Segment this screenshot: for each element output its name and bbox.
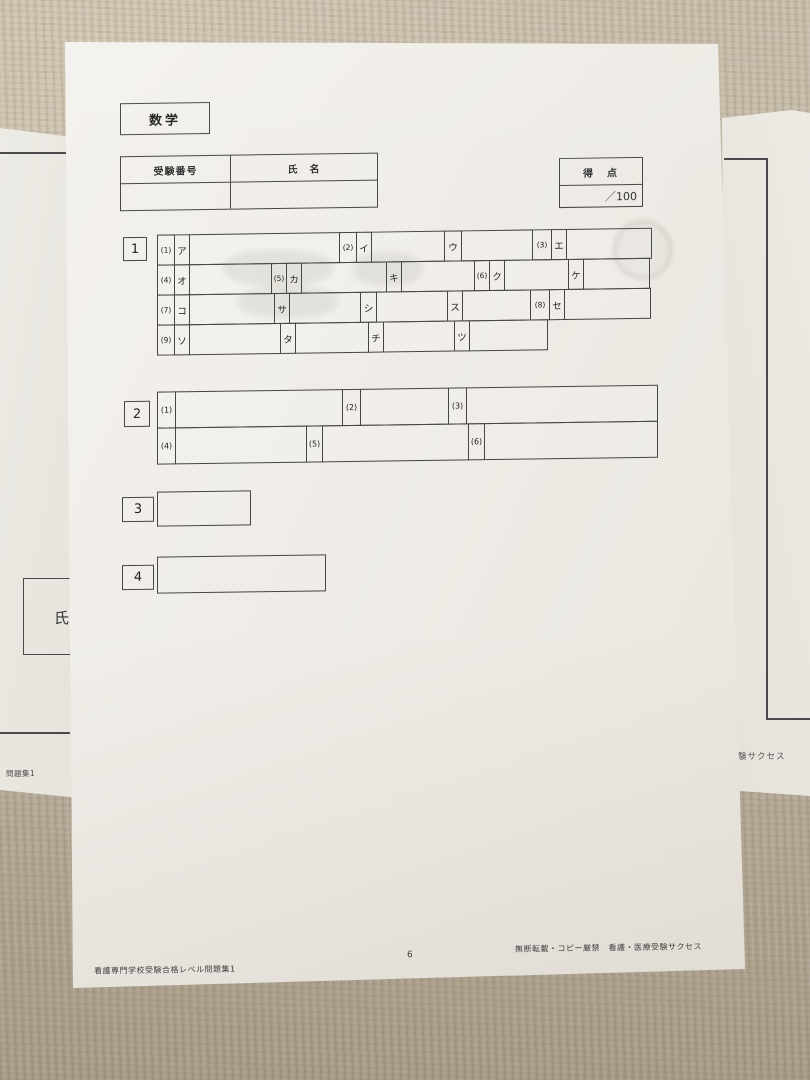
q1-answer-blank — [469, 319, 548, 351]
q1-item-label: (1) — [157, 234, 175, 265]
q2-item-label: (1) — [157, 391, 176, 428]
q1-item-label: (2) — [339, 232, 357, 263]
q1-answer-blank — [564, 288, 651, 320]
q1-kana-label: ソ — [174, 324, 190, 355]
left-sheet-rule-line — [0, 152, 66, 154]
examinee-info-blank-row — [121, 181, 377, 211]
subject-title-box: 数学 — [120, 102, 210, 135]
examinee-info-table: 受験番号 氏 名 — [120, 153, 378, 212]
q1-kana-label: ウ — [444, 230, 462, 261]
score-value: ／100 — [560, 185, 642, 207]
q1-answer-blank — [189, 323, 281, 355]
q1-item-label: (6) — [474, 260, 490, 291]
answer-sheet-content: 数学 受験番号 氏 名 得 点 ／100 1 (1) — [63, 28, 747, 990]
q1-kana-label: オ — [174, 264, 190, 295]
q1-answer-blank — [295, 322, 369, 354]
q1-answer-blank — [301, 261, 387, 293]
q2-row-2: (4) (5) (6) — [157, 421, 658, 465]
footer-page-number: 6 — [407, 950, 413, 960]
left-sheet-footer-text: 問題集1 — [6, 768, 35, 779]
score-box: 得 点 ／100 — [559, 157, 643, 208]
q1-answer-blank — [461, 229, 533, 261]
q1-answer-blank — [504, 259, 569, 291]
q1-kana-label: キ — [386, 261, 402, 292]
q1-item-label: (8) — [530, 289, 550, 320]
q1-answer-blank — [189, 232, 340, 265]
right-sheet-frame-line-top — [724, 158, 768, 160]
q1-item-label: (3) — [532, 229, 552, 260]
q1-answer-blank — [289, 292, 361, 324]
footer-copyright: 無断転載・コピー厳禁 看護・医療受験サクセス — [515, 941, 702, 955]
question-3-number-box: 3 — [122, 497, 154, 522]
q1-answer-blank — [189, 263, 272, 295]
q2-answer-blank — [466, 385, 658, 425]
question-4-number-box: 4 — [122, 565, 154, 590]
name-header-cell: 氏 名 — [231, 154, 377, 182]
q1-item-label: (4) — [157, 264, 175, 295]
question-2-number-box: 2 — [124, 401, 150, 427]
right-sheet-text-fragment: 験サクセス — [738, 750, 786, 762]
q1-kana-label: ス — [447, 290, 463, 321]
q2-answer-blank — [484, 421, 658, 460]
q1-kana-label: カ — [286, 263, 302, 294]
q1-kana-label: ツ — [454, 320, 470, 351]
right-sheet-frame-line-vertical — [766, 158, 768, 720]
q1-answer-blank — [566, 228, 652, 260]
q1-kana-label: ア — [174, 234, 190, 265]
q1-answer-blank — [376, 291, 448, 323]
q1-answer-blank — [583, 258, 650, 290]
exam-number-header-cell: 受験番号 — [121, 156, 231, 184]
q1-answer-blank — [383, 321, 455, 353]
photo-scene: 氏 問題集1 験サクセス 数学 受験番号 氏 名 — [0, 0, 810, 1080]
right-sheet-frame-line-bottom — [766, 718, 810, 720]
question-3-answer-box — [157, 490, 251, 526]
q1-item-label: (5) — [271, 263, 287, 294]
q2-item-label: (6) — [468, 423, 485, 460]
q1-kana-label: エ — [551, 229, 567, 260]
q2-answer-blank — [175, 426, 307, 465]
q2-item-label: (5) — [306, 425, 323, 462]
q1-kana-label: シ — [360, 292, 377, 323]
subject-title: 数学 — [149, 109, 181, 128]
q1-answer-blank — [401, 260, 475, 292]
q1-row-4: (9) ソ タ チ ツ — [157, 318, 652, 356]
question-2-answer-grid: (1) (2) (3) (4) (5) (6) — [157, 385, 658, 465]
examinee-info-header-row: 受験番号 氏 名 — [121, 154, 377, 185]
q1-item-label: (7) — [157, 294, 175, 325]
q1-kana-label: チ — [368, 322, 384, 353]
q1-answer-blank — [462, 289, 531, 321]
answer-sheet: 数学 受験番号 氏 名 得 点 ／100 1 (1) — [63, 38, 747, 990]
q2-answer-blank — [322, 423, 469, 462]
q2-item-label: (2) — [342, 389, 361, 426]
q1-answer-blank — [371, 231, 445, 263]
question-1-number-box: 1 — [123, 237, 147, 261]
left-sheet-bottom-rule — [0, 732, 70, 734]
q1-kana-label: ク — [489, 260, 505, 291]
q1-kana-label: コ — [174, 294, 190, 325]
q1-item-label: (9) — [157, 324, 175, 355]
q2-answer-blank — [175, 389, 343, 428]
q1-kana-label: サ — [274, 293, 290, 324]
q1-answer-blank — [189, 293, 275, 325]
name-blank-cell — [231, 181, 377, 209]
q2-item-label: (4) — [157, 427, 176, 464]
q1-kana-label: ケ — [568, 259, 584, 290]
q1-kana-label: イ — [356, 232, 372, 263]
footer-book-title: 看護専門学校受験合格レベル問題集1 — [94, 964, 236, 977]
score-label: 得 点 — [560, 158, 642, 186]
q1-kana-label: タ — [280, 323, 296, 354]
question-4-answer-box — [157, 554, 326, 593]
question-1-answer-grid: (1) ア (2) イ ウ (3) エ (4) オ (5) — [157, 228, 652, 356]
left-sheet-name-label: 氏 — [54, 607, 69, 628]
q2-item-label: (3) — [448, 387, 467, 424]
q2-answer-blank — [360, 388, 449, 426]
exam-number-blank-cell — [121, 183, 231, 211]
q1-kana-label: セ — [549, 289, 565, 320]
